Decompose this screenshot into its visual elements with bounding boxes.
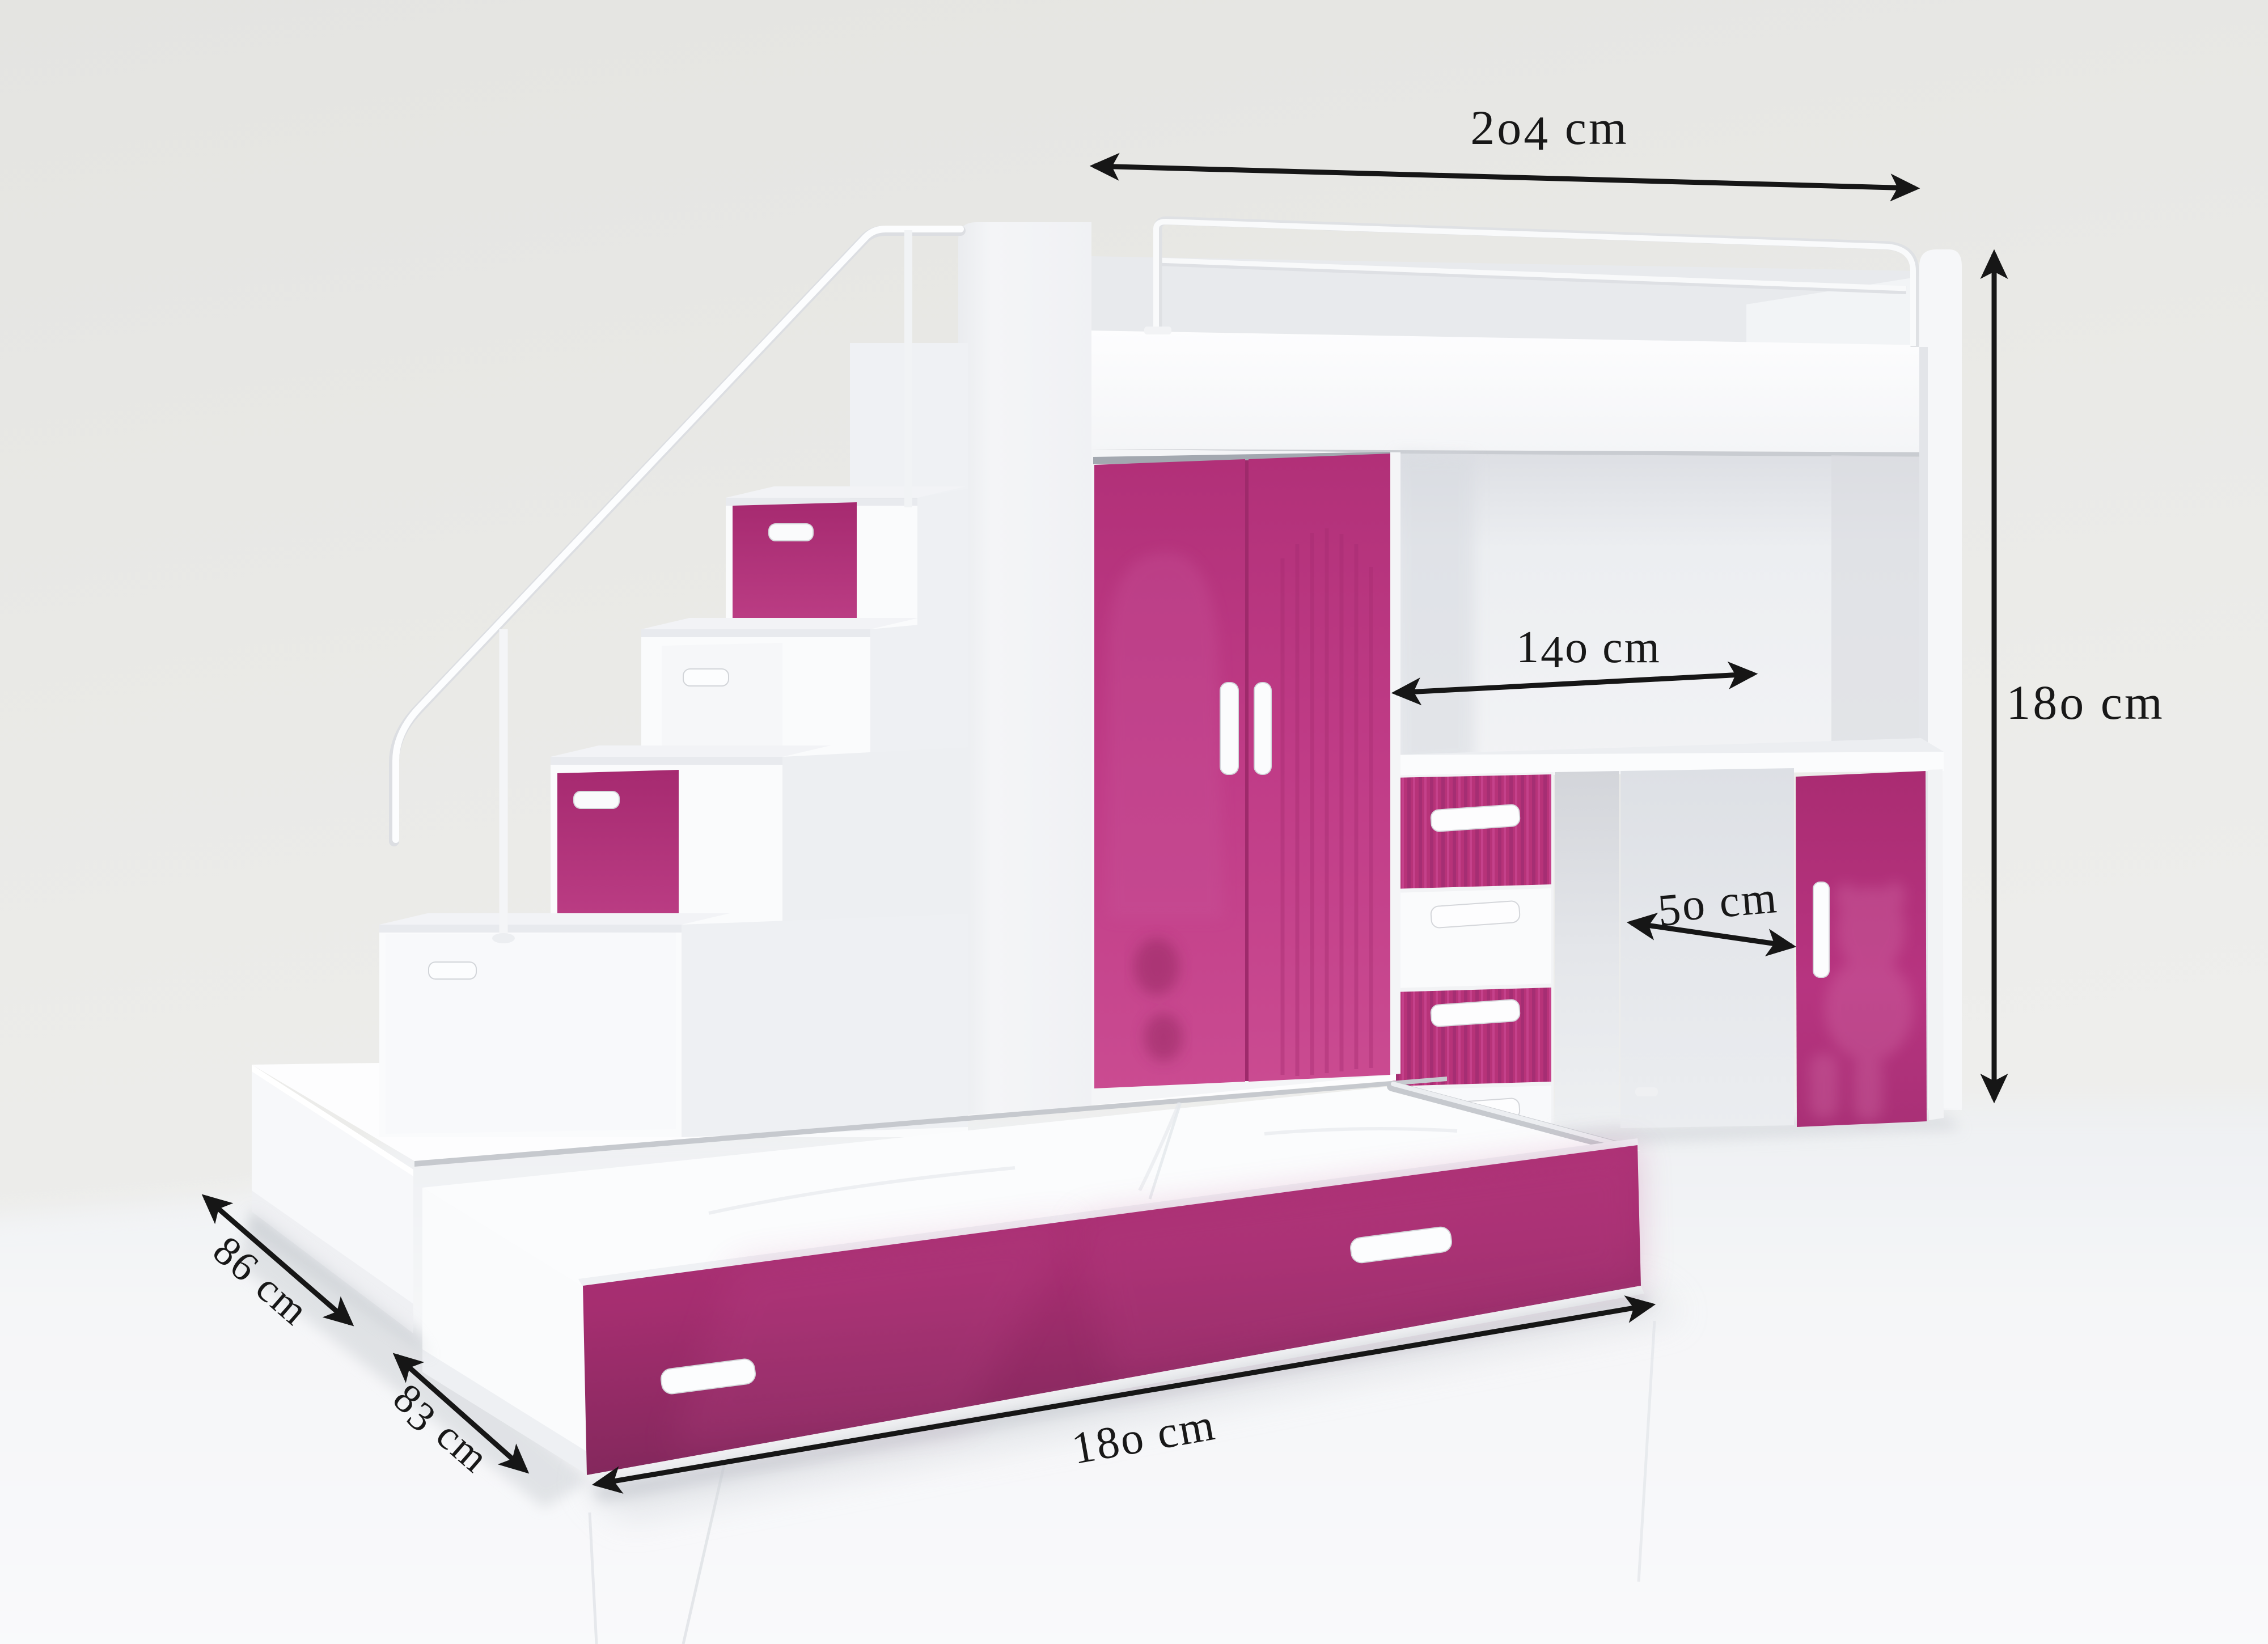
svg-text:18o cm: 18o cm (2006, 675, 2165, 730)
svg-text:14o cm: 14o cm (1516, 622, 1661, 677)
svg-text:2o4 cm: 2o4 cm (1470, 100, 1629, 160)
